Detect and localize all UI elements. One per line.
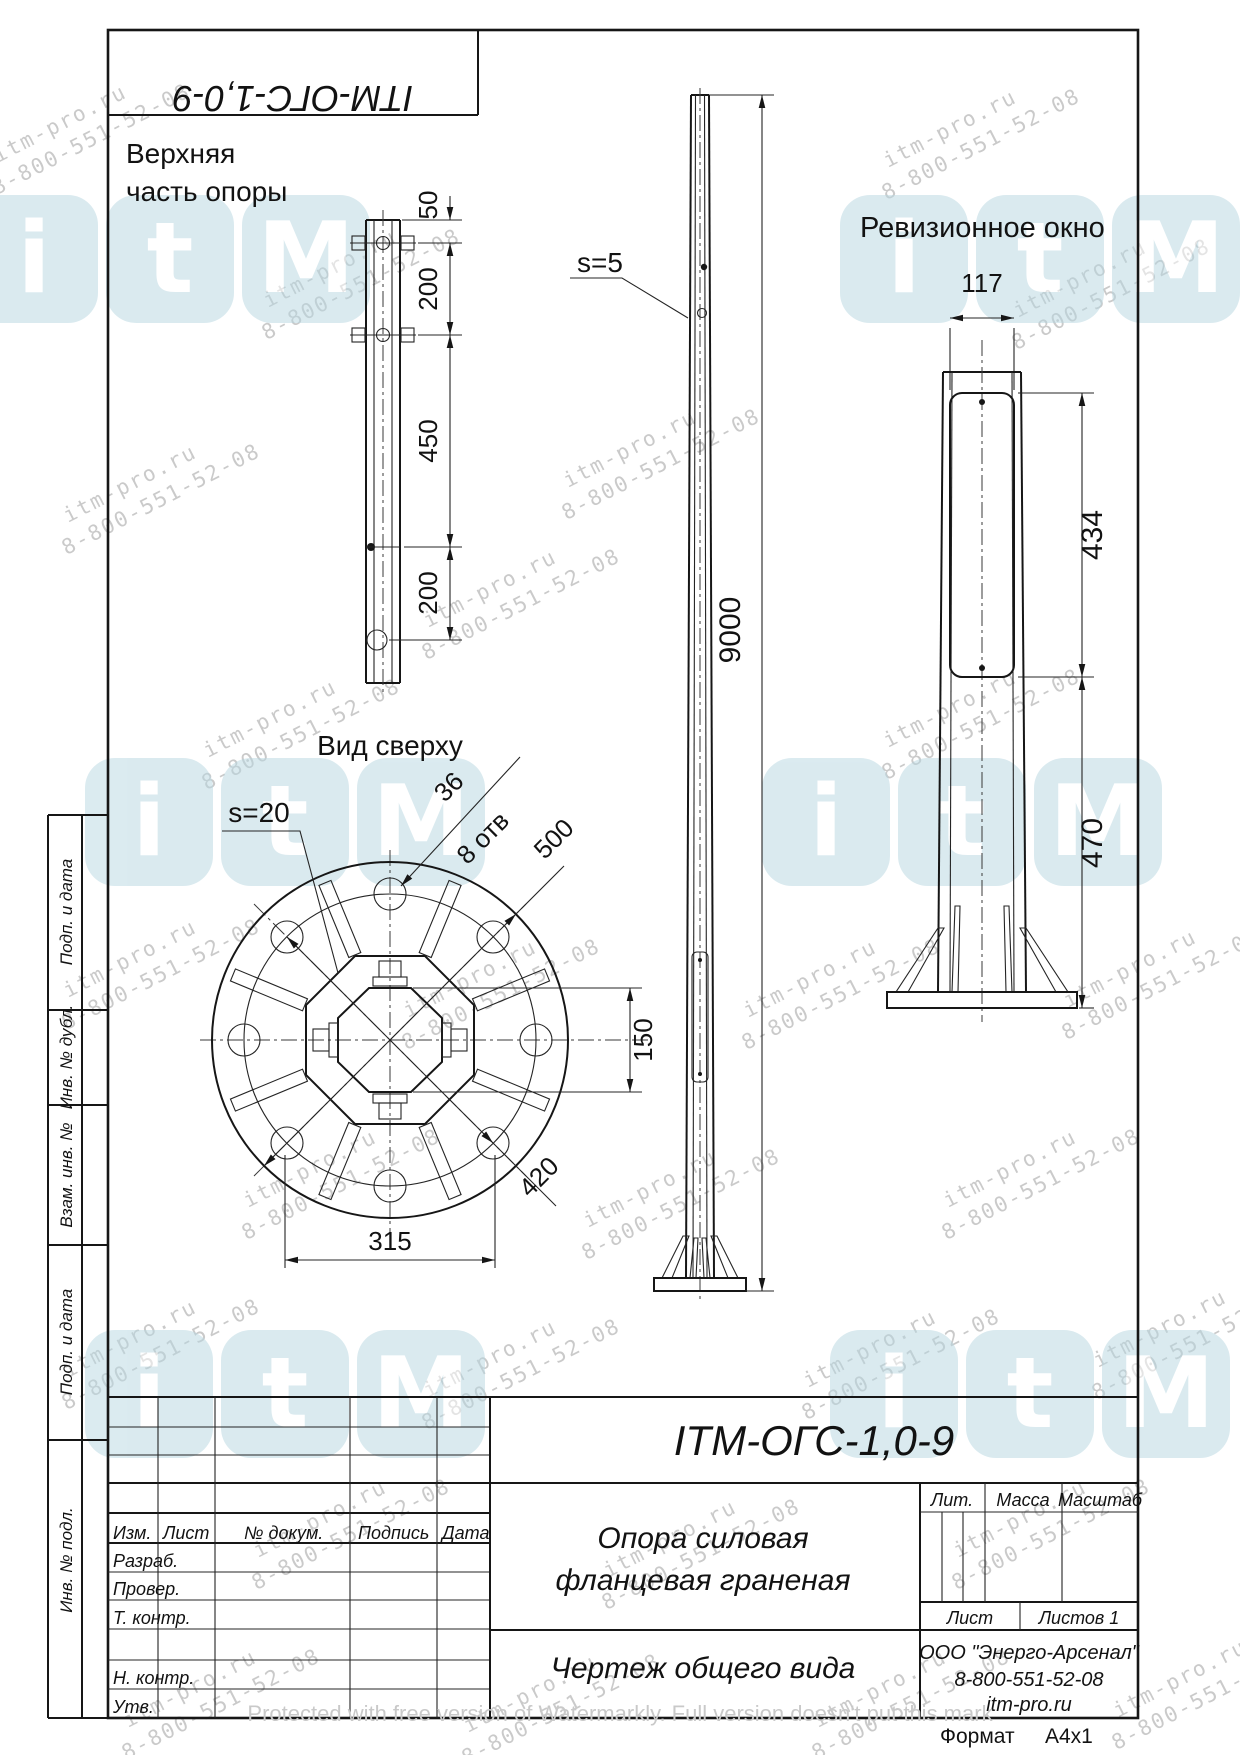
masshtab-header: Масштаб	[1058, 1490, 1143, 1510]
dim-500: 500	[528, 813, 580, 865]
drawing-sheet: itm-pro.ru8-800-551-52-08itm-pro.ru8-800…	[0, 0, 1240, 1755]
sidebar: Подп. и дата Инв. № дубл. Взам. инв. № П…	[48, 815, 108, 1718]
designation: ITM-ОГС-1,0-9	[674, 1417, 954, 1464]
protection-watermark: Protected with free version of Watermark…	[0, 1701, 1240, 1727]
col-izm: Изм.	[113, 1523, 151, 1543]
view-elevation: s=5 9000	[570, 88, 774, 1300]
dim-450: 450	[413, 419, 443, 462]
row-prover: Провер.	[113, 1579, 180, 1599]
dim-9000: 9000	[714, 597, 747, 664]
row-tkontr: Т. контр.	[113, 1608, 191, 1628]
listov-label: Листов 1	[1038, 1608, 1120, 1628]
sidebar-cell-label: Подп. и дата	[57, 859, 76, 965]
corner-stamp: ITM-ОГС-1,0-9	[108, 30, 478, 119]
doc-type: Чертеж общего вида	[551, 1652, 856, 1685]
lit-header: Лит.	[930, 1490, 973, 1510]
holes-note: 8 отв	[450, 805, 515, 870]
dim-200: 200	[413, 267, 443, 310]
format-value: А4х1	[1045, 1725, 1093, 1748]
massa-header: Масса	[996, 1490, 1049, 1510]
sidebar-cell-label: Инв. № подл.	[57, 1507, 76, 1613]
dim-117: 117	[961, 268, 1002, 298]
view-upper-detail: Верхняя часть опоры	[126, 138, 462, 693]
dim-434: 434	[1076, 510, 1109, 560]
col-doc: № докум.	[244, 1523, 323, 1543]
dim-315: 315	[368, 1226, 411, 1256]
dim-50: 50	[413, 191, 443, 220]
dim-36: 36	[428, 766, 470, 808]
corner-stamp-designation: ITM-ОГС-1,0-9	[173, 78, 413, 119]
col-sign: Подпись	[358, 1523, 429, 1543]
view-top: Вид сверху	[200, 730, 658, 1268]
view-revision-window: Ревизионное окно 117	[860, 212, 1109, 1022]
view-title: Ревизионное окно	[860, 212, 1105, 244]
company-name: ООО "Энерго-Арсенал"	[919, 1642, 1140, 1664]
row-nkontr: Н. контр.	[113, 1668, 194, 1688]
col-list: Лист	[162, 1523, 209, 1543]
view-title: Вид сверху	[317, 730, 463, 761]
wall-thickness-label: s=20	[228, 797, 290, 828]
list-label: Лист	[946, 1608, 993, 1628]
title-block: Изм. Лист № докум. Подпись Дата Разраб. …	[108, 1397, 1143, 1718]
format-label: Формат	[940, 1725, 1015, 1748]
part-name: Опора силовая	[597, 1522, 808, 1555]
part-name: фланцевая граненая	[556, 1564, 851, 1597]
sidebar-cell-label: Инв. № дубл.	[57, 1005, 76, 1110]
view-title: часть опоры	[126, 176, 287, 207]
row-razrab: Разраб.	[113, 1551, 178, 1571]
dim-470: 470	[1076, 818, 1109, 868]
sidebar-cell-label: Взам. инв. №	[57, 1122, 76, 1227]
col-date: Дата	[440, 1523, 490, 1543]
dim-150: 150	[628, 1018, 658, 1061]
engineering-drawing: ITM-ОГС-1,0-9 Подп. и дата Инв. № дубл. …	[0, 0, 1240, 1755]
format-note: Формат А4х1	[940, 1725, 1093, 1748]
wall-thickness-label: s=5	[577, 247, 623, 278]
dim-420: 420	[513, 1151, 565, 1203]
dim-200: 200	[413, 571, 443, 614]
sidebar-cell-label: Подп. и дата	[57, 1289, 76, 1395]
view-title: Верхняя	[126, 138, 235, 169]
company-phone: 8-800-551-52-08	[955, 1669, 1104, 1691]
